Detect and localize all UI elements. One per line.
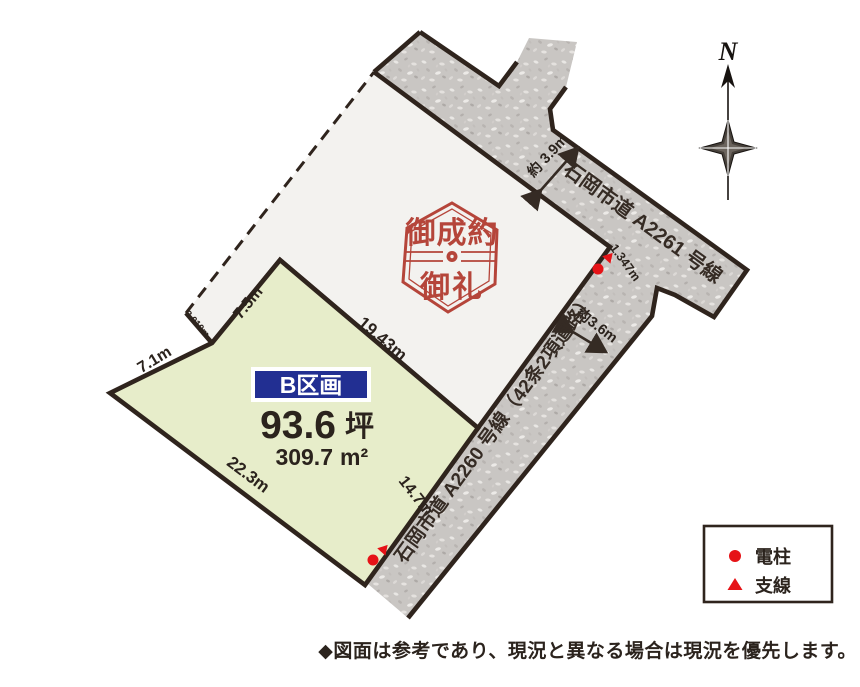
plot-b-sqm-unit: m² (340, 444, 368, 470)
pole-marker-1 (593, 264, 604, 275)
plot-map-page: 7.5m 3.010m 7.1m 19.43m 22.3m 14.7m 1.34… (0, 0, 860, 687)
disclaimer-note: ◆図面は参考であり、現況と異なる場合は現況を優先します。 (318, 636, 857, 663)
stamp-text-line1: 御成約 (405, 217, 499, 250)
pole-marker-2 (368, 555, 379, 566)
plot-map-svg: 7.5m 3.010m 7.1m 19.43m 22.3m 14.7m 1.34… (0, 0, 860, 687)
stamp-crest-center (450, 255, 453, 258)
legend-box: 電柱 支線 (704, 526, 832, 602)
plot-b-area-tsubo: 93.6 (260, 404, 336, 447)
stamp-text-line2: 御礼 (419, 271, 484, 304)
north-label: N (718, 37, 739, 66)
legend-pole-label: 電柱 (755, 546, 791, 567)
plot-b-tsubo-unit: 坪 (345, 410, 374, 443)
plot-b-badge-label: B区画 (280, 372, 343, 398)
legend-pole-marker (729, 550, 741, 562)
plot-b-area-sqm: 309.7 (275, 444, 333, 470)
compass-star (700, 120, 756, 176)
north-arrow: N (700, 37, 756, 200)
legend-wire-label: 支線 (754, 575, 791, 596)
